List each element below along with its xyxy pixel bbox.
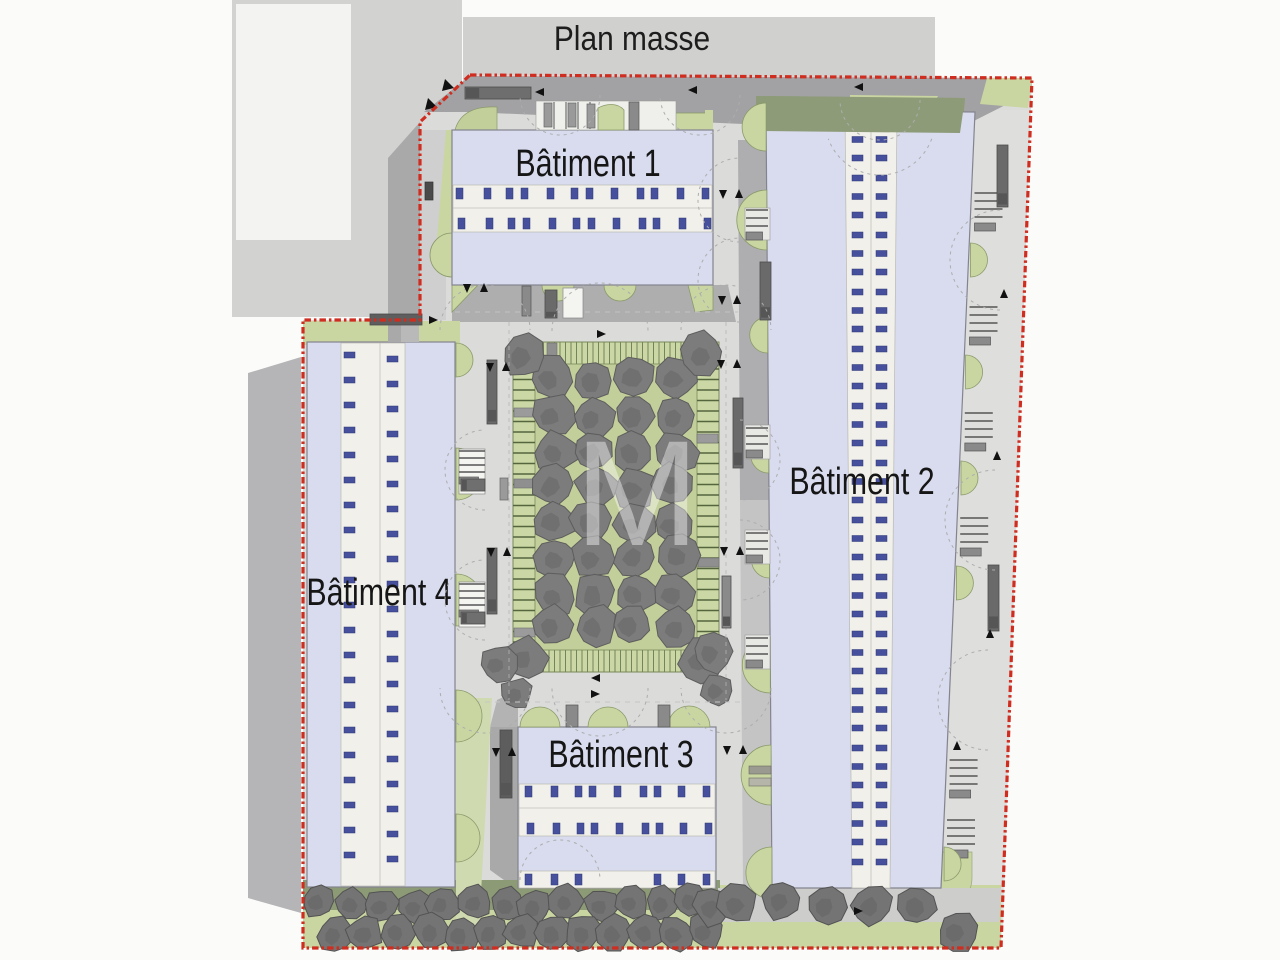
svg-text:Plan masse: Plan masse (554, 19, 710, 57)
svg-text:M: M (575, 409, 700, 577)
svg-text:Bâtiment 3: Bâtiment 3 (548, 734, 693, 776)
svg-text:Bâtiment 1: Bâtiment 1 (515, 143, 660, 185)
svg-text:Bâtiment 4: Bâtiment 4 (306, 572, 451, 614)
svg-text:Bâtiment 2: Bâtiment 2 (789, 461, 934, 503)
